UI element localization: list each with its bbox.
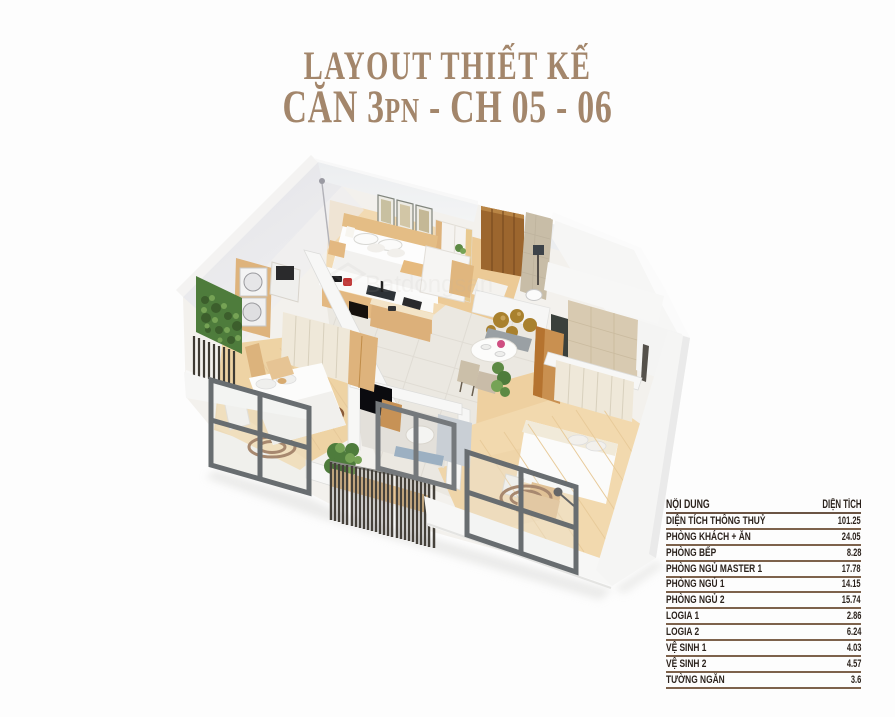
svg-text:Batdongsan: Batdongsan <box>365 271 493 298</box>
